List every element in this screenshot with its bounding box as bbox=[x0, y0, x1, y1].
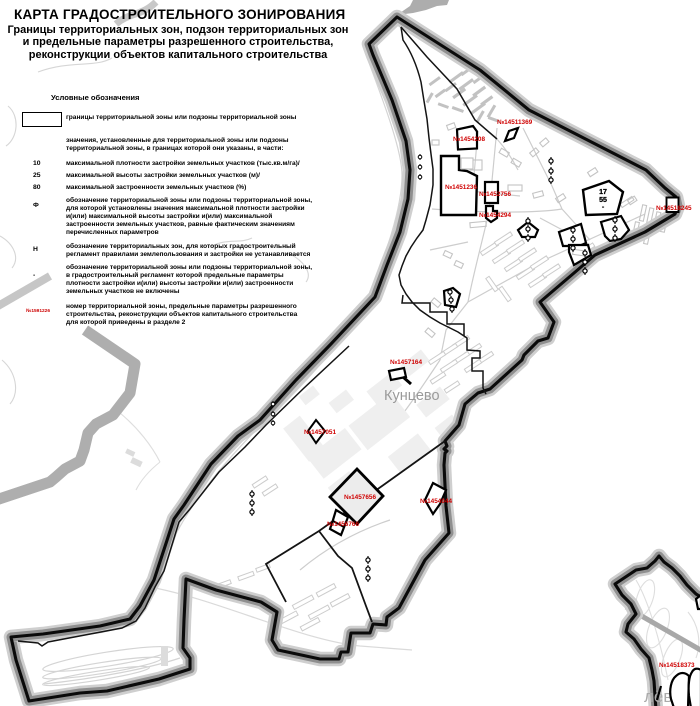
svg-text:№1457656: №1457656 bbox=[344, 494, 376, 501]
svg-text:№1457051: №1457051 bbox=[304, 429, 336, 436]
svg-text:№14518245: №14518245 bbox=[656, 205, 692, 212]
svg-text:№1454294: №1454294 bbox=[479, 212, 511, 219]
svg-text:№14511369: №14511369 bbox=[497, 119, 533, 126]
svg-text:№1454208: №1454208 bbox=[453, 136, 485, 143]
svg-text:№1456766: №1456766 bbox=[327, 521, 359, 528]
svg-text:№1452756: №1452756 bbox=[479, 191, 511, 198]
svg-text:№1457164: №1457164 bbox=[390, 359, 422, 366]
svg-text:№1454044: №1454044 bbox=[420, 498, 452, 505]
svg-text:№1451236: №1451236 bbox=[445, 184, 477, 191]
svg-text:Кунцево: Кунцево bbox=[384, 388, 440, 404]
svg-text:№14518373: №14518373 bbox=[659, 662, 695, 669]
